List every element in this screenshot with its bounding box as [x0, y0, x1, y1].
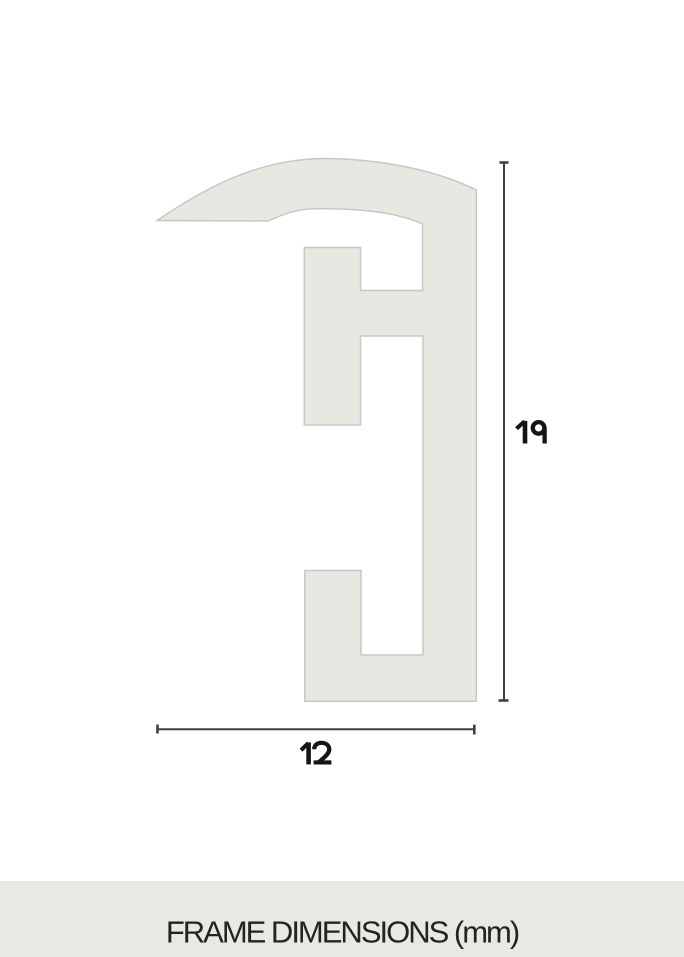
svg-text:FRAME DIMENSIONS (mm): FRAME DIMENSIONS (mm) — [166, 915, 519, 950]
